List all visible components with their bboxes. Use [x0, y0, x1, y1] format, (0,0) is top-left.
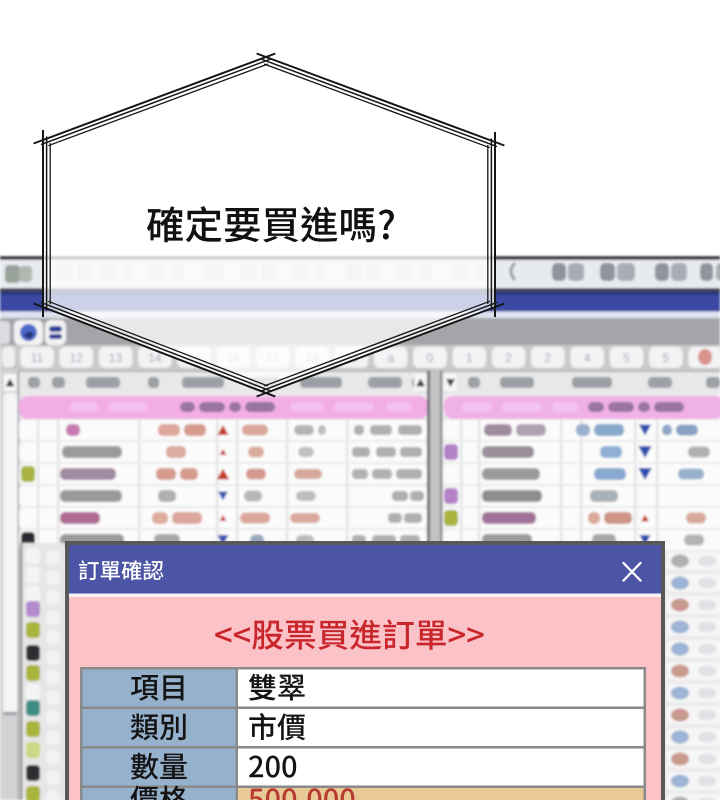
svg-text:11: 11 [31, 351, 44, 365]
svg-text:2: 2 [505, 351, 512, 365]
svg-text:0: 0 [427, 351, 434, 365]
svg-text:13: 13 [109, 351, 123, 365]
svg-text:4: 4 [584, 351, 591, 365]
svg-text:a: a [387, 351, 394, 365]
svg-text:5: 5 [623, 351, 630, 365]
svg-text:2: 2 [545, 351, 552, 365]
svg-text:5: 5 [662, 351, 669, 365]
svg-text:12: 12 [70, 351, 84, 365]
svg-text:1: 1 [466, 351, 473, 365]
